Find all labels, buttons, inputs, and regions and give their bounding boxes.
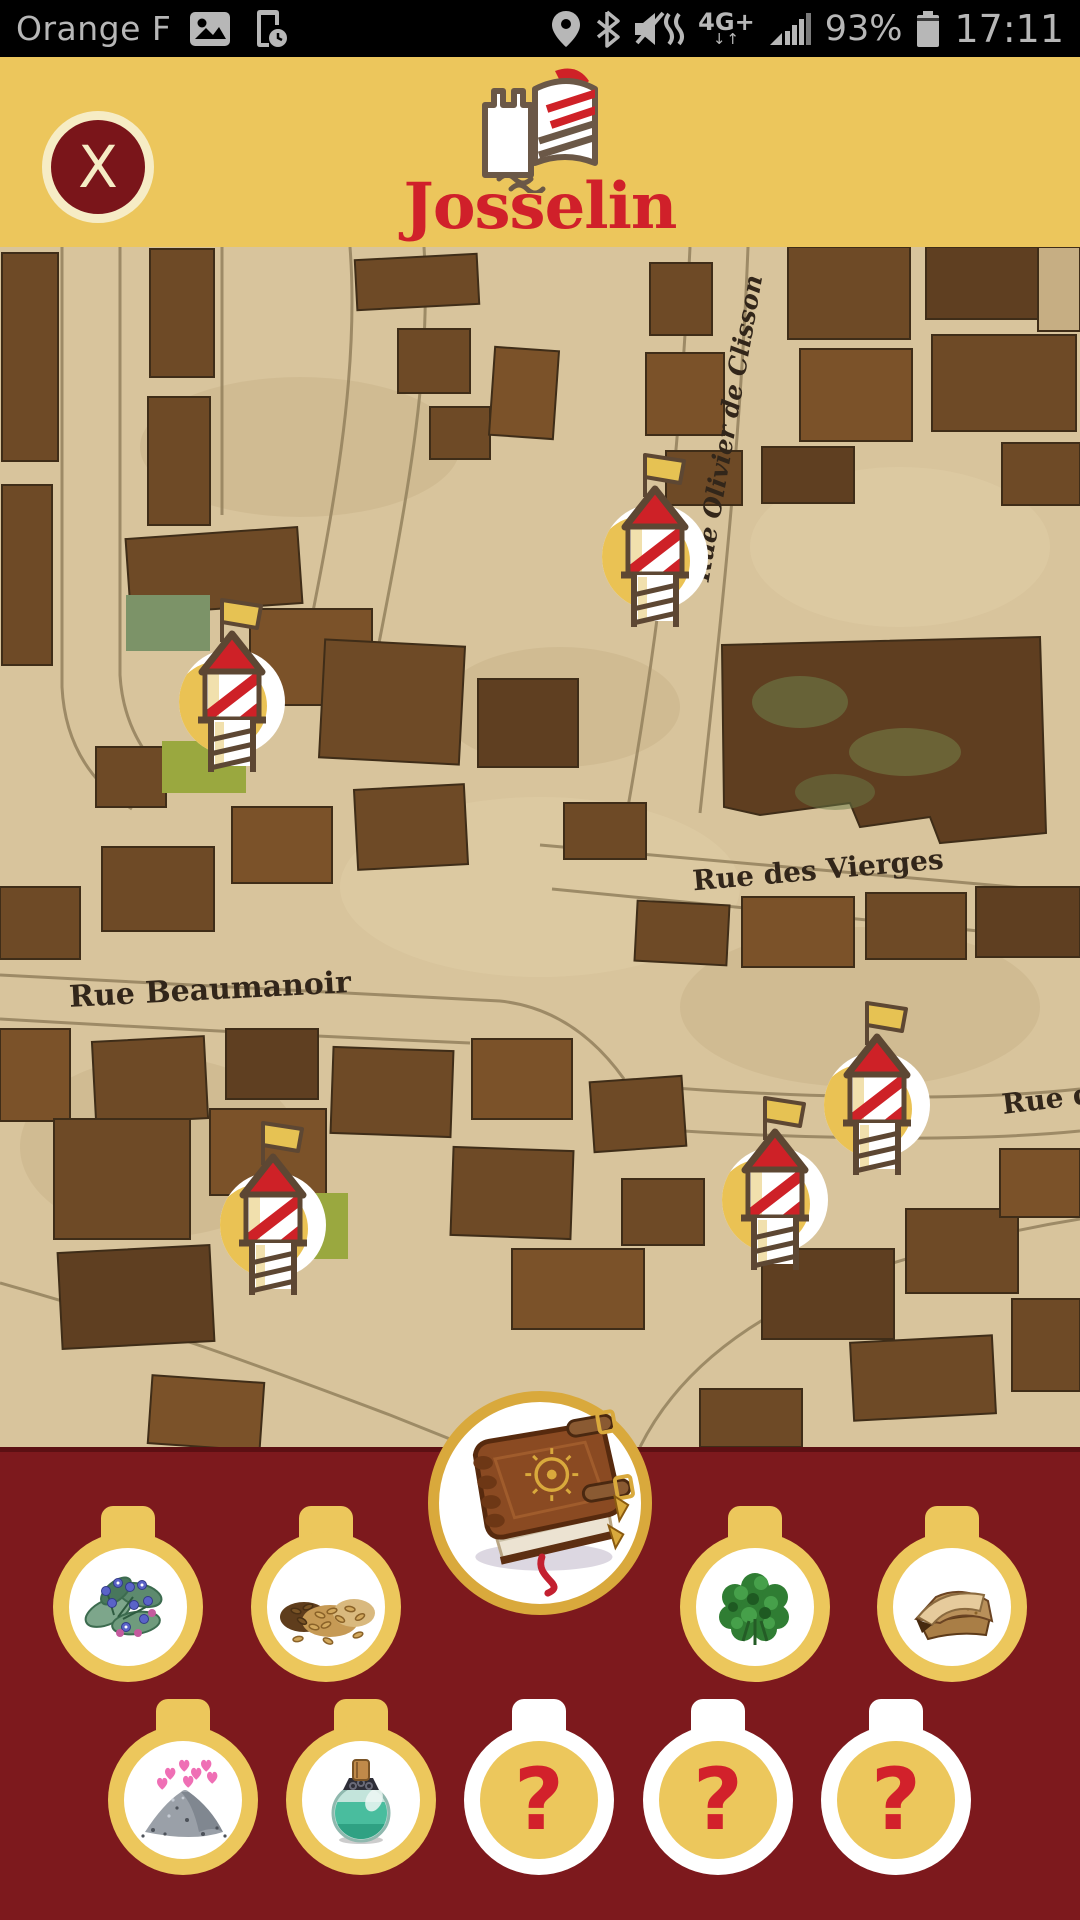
herbs-icon xyxy=(705,1557,805,1657)
question-mark: ? xyxy=(693,1757,743,1843)
leather-icon xyxy=(902,1557,1002,1657)
bluetooth-icon xyxy=(594,10,620,48)
inventory-item-love-powder[interactable] xyxy=(108,1699,258,1875)
inventory-item-potion[interactable] xyxy=(286,1699,436,1875)
map-illustration xyxy=(0,247,1080,1447)
app-header: X Josselin xyxy=(0,57,1080,247)
battery-percent: 93% xyxy=(825,9,903,49)
flowers-icon xyxy=(78,1557,178,1657)
watchtower-icon xyxy=(817,987,937,1177)
device-clock-icon xyxy=(249,9,289,49)
inventory-item-herbs[interactable] xyxy=(680,1506,830,1682)
carrier-label: Orange F xyxy=(16,9,171,48)
inventory-item-grimoire[interactable] xyxy=(428,1391,652,1615)
question-mark: ? xyxy=(514,1757,564,1843)
map-marker-watchtower-3[interactable] xyxy=(817,987,937,1177)
inventory-item-unknown-2[interactable]: ? xyxy=(643,1699,793,1875)
love-powder-icon xyxy=(133,1750,233,1850)
location-icon xyxy=(551,10,581,48)
potion-icon xyxy=(311,1750,411,1850)
map-marker-watchtower-1[interactable] xyxy=(595,439,715,629)
inventory-item-unknown-3[interactable]: ? xyxy=(821,1699,971,1875)
map-marker-watchtower-4[interactable] xyxy=(715,1082,835,1272)
inventory-item-leather[interactable] xyxy=(877,1506,1027,1682)
status-bar: Orange F xyxy=(0,0,1080,57)
network-indicator: 4G+ ↓↑ xyxy=(698,10,755,47)
battery-icon xyxy=(915,10,941,48)
inventory-item-flowers[interactable] xyxy=(53,1506,203,1682)
watchtower-icon xyxy=(715,1082,835,1272)
inventory-item-seeds[interactable] xyxy=(251,1506,401,1682)
town-map[interactable]: Rue Olivier de Clisson Rue des Vierges R… xyxy=(0,247,1080,1447)
app-screen: Orange F xyxy=(0,0,1080,1920)
mute-vibrate-icon xyxy=(633,10,685,48)
clock-label: 17:11 xyxy=(954,7,1064,51)
spellbook-icon xyxy=(442,1408,638,1598)
map-marker-watchtower-5[interactable] xyxy=(213,1107,333,1297)
inventory-item-unknown-1[interactable]: ? xyxy=(464,1699,614,1875)
page-title: Josselin xyxy=(0,169,1080,244)
signal-icon xyxy=(768,11,812,47)
watchtower-icon xyxy=(172,584,292,774)
seeds-icon xyxy=(276,1557,376,1657)
watchtower-icon xyxy=(595,439,715,629)
question-mark: ? xyxy=(871,1757,921,1843)
screenshot-icon xyxy=(189,11,231,47)
map-marker-watchtower-2[interactable] xyxy=(172,584,292,774)
watchtower-icon xyxy=(213,1107,333,1297)
